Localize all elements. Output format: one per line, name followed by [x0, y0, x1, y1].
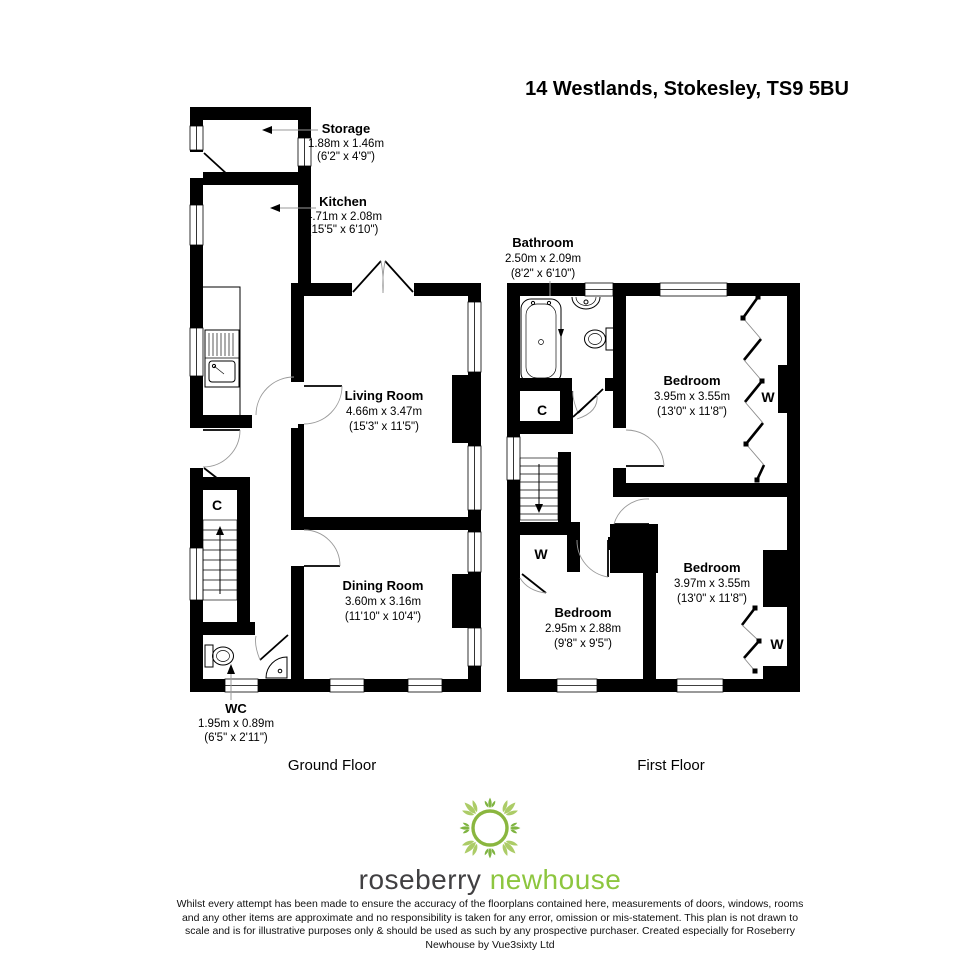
ground-cupboard-label: C [212, 497, 222, 513]
disclaimer-text: Whilst every attempt has been made to en… [170, 898, 810, 952]
room-size-metric: 3.95m x 3.55m [654, 391, 730, 403]
room-name: Bathroom [512, 235, 573, 250]
first-floor-stairs [520, 458, 558, 520]
room-size-imperial: (6'2" x 4'9") [317, 151, 375, 163]
wardrobe-bifold-bedroom2 [742, 606, 762, 674]
kitchen-sink [205, 330, 239, 387]
room-size-metric: 3.60m x 3.16m [345, 596, 421, 608]
room-size-metric: 4.71m x 2.08m [306, 211, 382, 223]
bathroom-toilet [585, 328, 616, 350]
agency-logo-emblem [459, 797, 521, 859]
label-bedroom-1: Bedroom 3.95m x 3.55m (13'0" x 11'8") [654, 373, 730, 418]
wc-arrow [227, 664, 235, 674]
storage-arrow [262, 126, 272, 134]
label-dining-room: Dining Room 3.60m x 3.16m (11'10" x 10'4… [343, 578, 424, 623]
wardrobe-label-stairs: W [534, 546, 548, 562]
logo-space [481, 864, 489, 895]
room-size-imperial: (9'8" x 9'5") [554, 638, 612, 650]
room-size-imperial: (15'3" x 11'5") [349, 421, 419, 433]
stairs-down-arrow [535, 504, 543, 513]
first-cupboard-label: C [537, 402, 547, 418]
logo-primary: roseberry [359, 864, 482, 895]
room-name: Living Room [345, 388, 424, 403]
bath [521, 299, 561, 383]
floorplan-page: 14 Westlands, Stokesley, TS9 5BU [0, 0, 980, 980]
room-size-imperial: (11'10" x 10'4") [345, 611, 421, 623]
room-name: Dining Room [343, 578, 424, 593]
room-size-metric: 4.66m x 3.47m [346, 406, 422, 418]
logo-secondary: newhouse [490, 864, 622, 895]
label-bedroom-2: Bedroom 3.97m x 3.55m (13'0" x 11'8") [674, 560, 750, 605]
room-size-metric: 3.97m x 3.55m [674, 578, 750, 590]
agency-logo-text: roseberry newhouse [359, 864, 622, 895]
wardrobe-label-bedroom1: W [761, 389, 775, 405]
floorplan-canvas: 14 Westlands, Stokesley, TS9 5BU [0, 0, 980, 980]
ground-floor-label: Ground Floor [288, 757, 376, 774]
page-title: 14 Westlands, Stokesley, TS9 5BU [525, 78, 849, 100]
ground-stairs [203, 520, 237, 600]
room-size-metric: 1.88m x 1.46m [308, 138, 384, 150]
room-name: Bedroom [683, 560, 740, 575]
room-size-imperial: (8'2" x 6'10") [511, 268, 576, 280]
room-name: Bedroom [663, 373, 720, 388]
bathroom-arrow [558, 313, 564, 338]
wc-toilet [205, 645, 234, 667]
label-storage: Storage 1.88m x 1.46m (6'2" x 4'9") [262, 121, 384, 163]
room-size-metric: 1.95m x 0.89m [198, 718, 274, 730]
label-wc: WC 1.95m x 0.89m (6'5" x 2'11") [198, 664, 274, 744]
room-size-imperial: (13'0" x 11'8") [657, 406, 727, 418]
label-bedroom-3: Bedroom 2.95m x 2.88m (9'8" x 9'5") [545, 605, 621, 650]
room-name: WC [225, 701, 247, 716]
room-size-imperial: (15'5" x 6'10") [308, 224, 379, 236]
wc-corner-basin [266, 657, 287, 678]
kitchen-arrow [270, 204, 280, 212]
first-floor-label: First Floor [637, 757, 705, 774]
room-name: Storage [322, 121, 370, 136]
label-kitchen: Kitchen 4.71m x 2.08m (15'5" x 6'10") [270, 194, 382, 236]
bathroom-basin [572, 297, 600, 309]
room-size-imperial: (6'5" x 2'11") [204, 732, 268, 744]
room-size-metric: 2.95m x 2.88m [545, 623, 621, 635]
room-size-imperial: (13'0" x 11'8") [677, 593, 747, 605]
room-name: Bedroom [554, 605, 611, 620]
kitchen-counter [203, 287, 240, 415]
room-name: Kitchen [319, 194, 367, 209]
stairs-up-arrow [216, 526, 224, 535]
label-living-room: Living Room 4.66m x 3.47m (15'3" x 11'5"… [345, 388, 424, 433]
wardrobe-label-bedroom2: W [770, 636, 784, 652]
room-size-metric: 2.50m x 2.09m [505, 253, 581, 265]
